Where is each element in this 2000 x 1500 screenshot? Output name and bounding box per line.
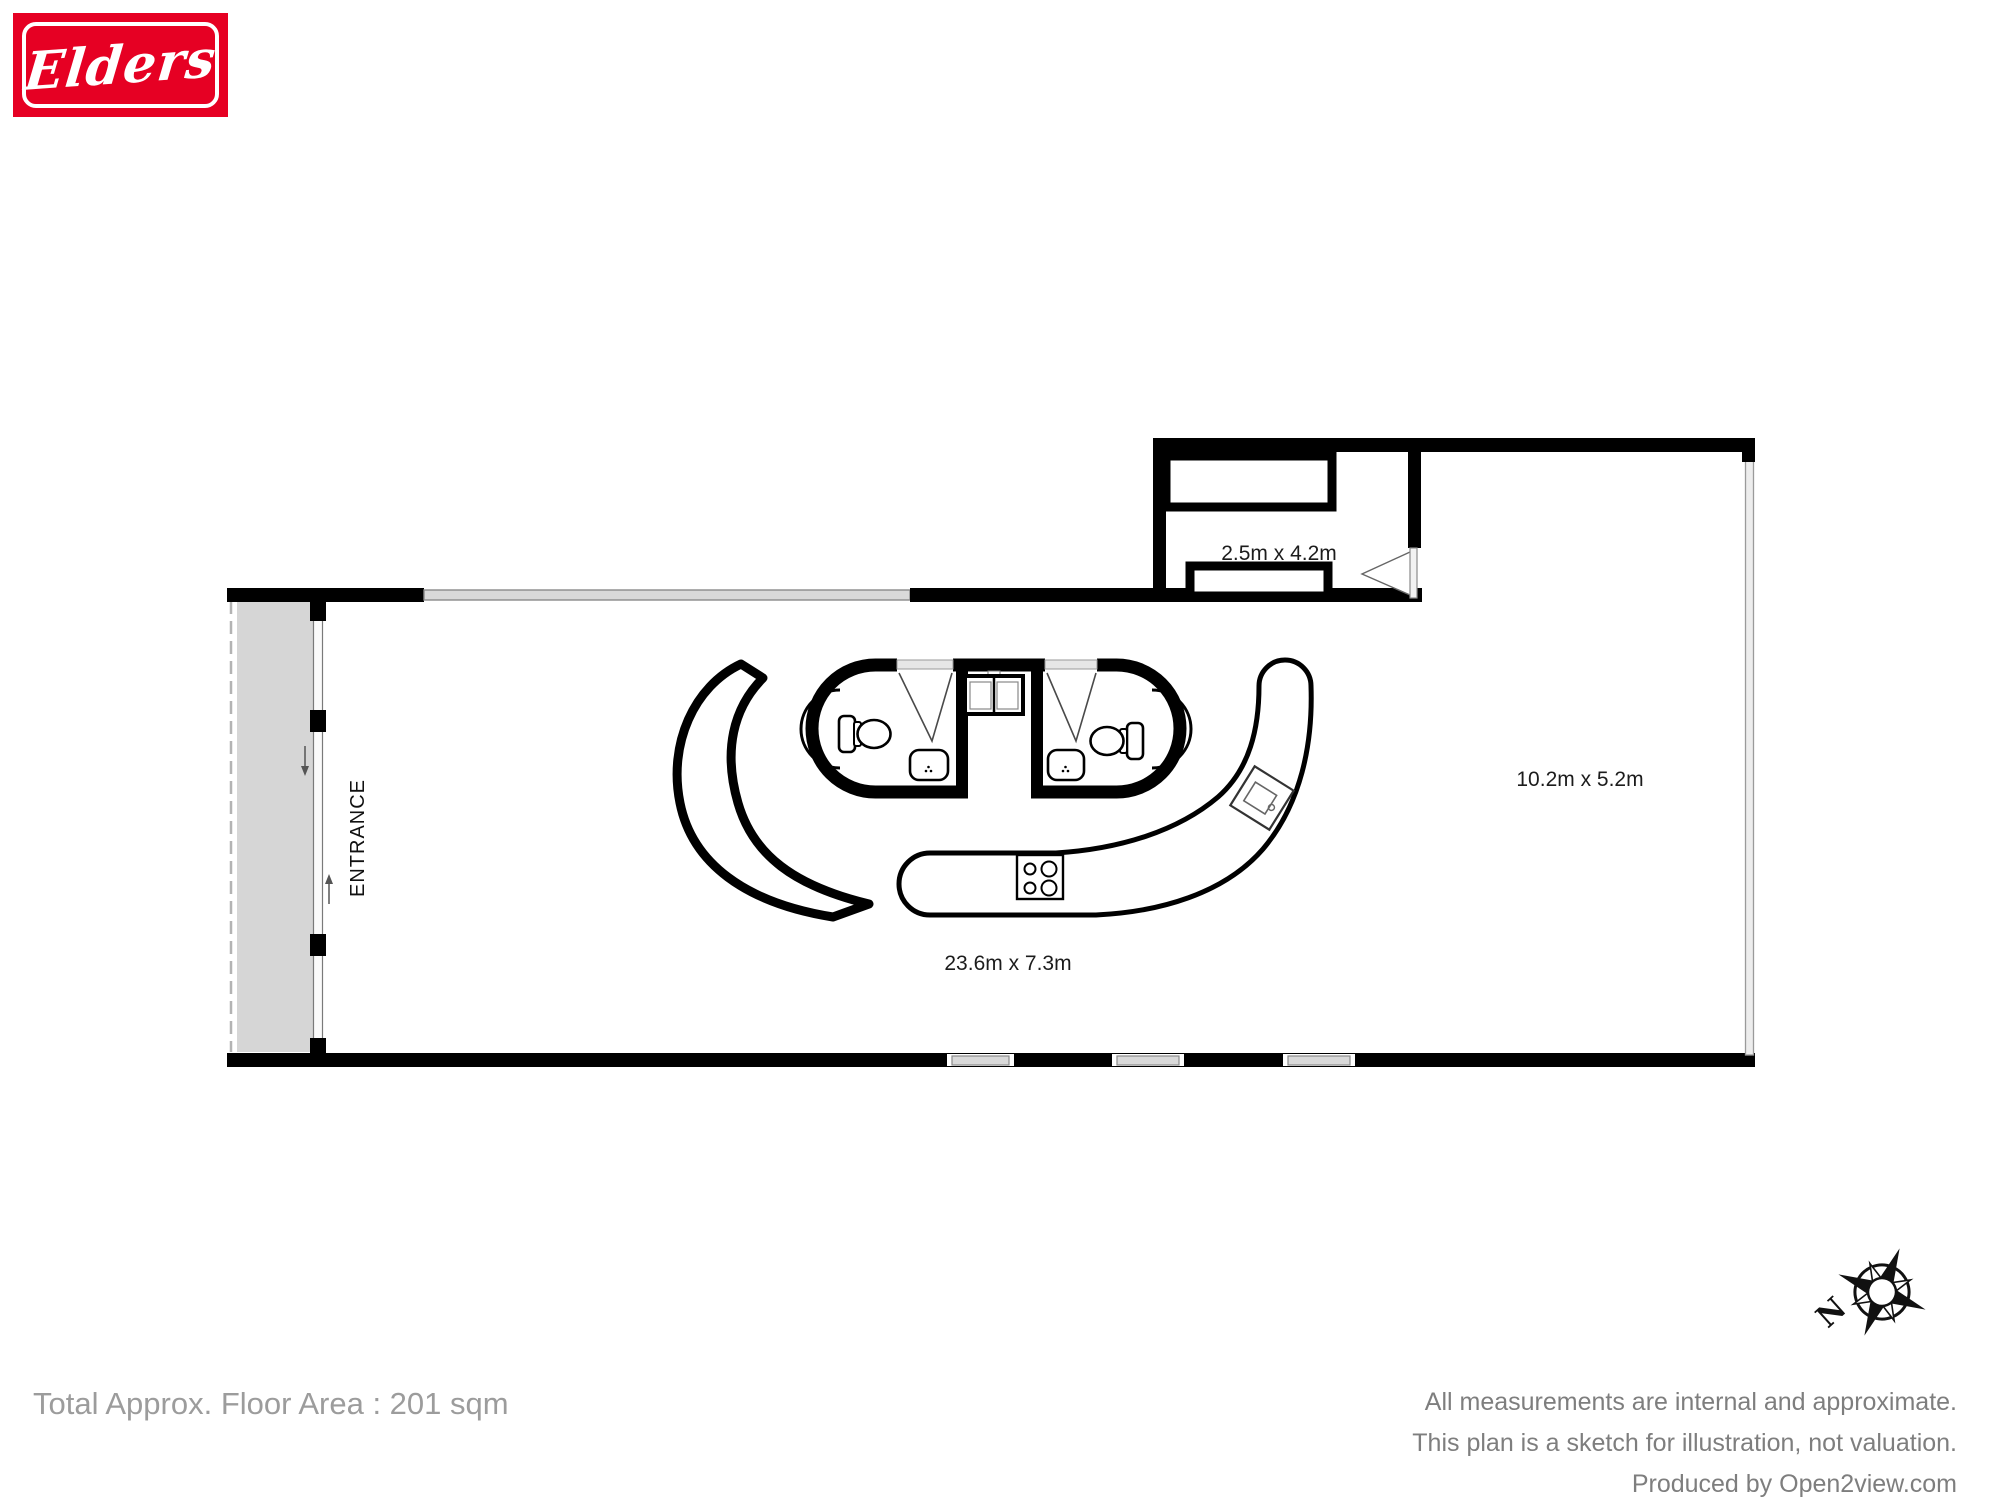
- vanity-double-sink: [965, 671, 1023, 714]
- floor-plan: 2.5m x 4.2m 10.2m x 5.2m 23.6m x 7.3m EN…: [0, 0, 2000, 1500]
- top-right-corner: [1742, 452, 1755, 462]
- entrance-porch: [231, 601, 333, 1053]
- wall-stub: [310, 934, 326, 956]
- left-door-header: [897, 660, 953, 669]
- bottom-windows: [947, 1054, 1355, 1066]
- sliding-door-track: [314, 601, 323, 1052]
- disclaimer-block: All measurements are internal and approx…: [1412, 1382, 1957, 1500]
- entrance-label: ENTRANCE: [347, 779, 369, 897]
- toilet-left: [839, 716, 891, 752]
- top-window-band: [424, 590, 910, 600]
- pod-partition-right: [1031, 665, 1043, 792]
- top-wall-left: [227, 588, 424, 602]
- upper-top-wall: [1153, 438, 1755, 452]
- compass-rose: N: [1810, 1231, 1943, 1353]
- small-room-right-wall: [1408, 452, 1421, 548]
- disclaimer-line-2: This plan is a sketch for illustration, …: [1412, 1423, 1957, 1464]
- compass-north-label: N: [1810, 1291, 1854, 1335]
- right-window-wall: [1746, 460, 1754, 1055]
- small-room-upper-fitting: [1166, 456, 1332, 507]
- wall-stub: [310, 710, 326, 732]
- small-room-dimensions: 2.5m x 4.2m: [1221, 542, 1337, 565]
- upper-section: [1153, 438, 1755, 602]
- disclaimer-line-1: All measurements are internal and approx…: [1412, 1382, 1957, 1423]
- right-area-dimensions: 10.2m x 5.2m: [1516, 768, 1643, 791]
- producer-credit: Produced by Open2view.com: [1412, 1464, 1957, 1500]
- total-floor-area: Total Approx. Floor Area : 201 sqm: [33, 1386, 509, 1422]
- basin-left: [910, 750, 948, 780]
- toilet-right: [1091, 723, 1144, 759]
- slide-direction-arrow-up: [325, 874, 333, 904]
- small-room-lower-fitting: [1190, 566, 1328, 596]
- cooktop: [1017, 855, 1063, 899]
- basin-right: [1048, 750, 1084, 780]
- pod-alcove-opening: [968, 784, 1031, 800]
- porch-deck: [237, 601, 313, 1052]
- toilet-pod: [801, 657, 1191, 800]
- floorplan-page: Elders: [0, 0, 2000, 1500]
- main-room-dimensions: 23.6m x 7.3m: [944, 952, 1071, 975]
- wall-stub: [310, 601, 326, 621]
- right-door-header: [1045, 660, 1097, 669]
- wall-stub: [310, 1038, 326, 1053]
